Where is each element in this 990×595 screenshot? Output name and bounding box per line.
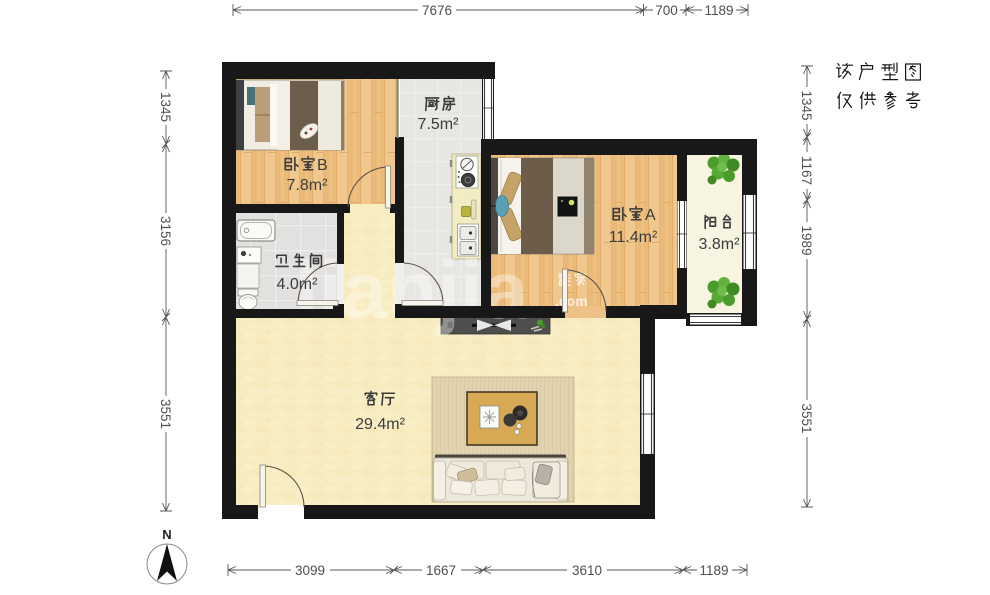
svg-text:3099: 3099 xyxy=(295,563,325,578)
svg-text:1989: 1989 xyxy=(799,225,814,255)
svg-text:lianjia: lianjia xyxy=(296,245,530,336)
svg-text:700: 700 xyxy=(655,3,678,18)
svg-text:N: N xyxy=(162,527,171,542)
svg-text:1345: 1345 xyxy=(799,90,814,120)
svg-text:11.4m²: 11.4m² xyxy=(609,229,658,246)
svg-text:3551: 3551 xyxy=(799,403,814,433)
svg-text:1667: 1667 xyxy=(426,563,456,578)
svg-text:1189: 1189 xyxy=(704,3,733,18)
svg-text:7.8m²: 7.8m² xyxy=(287,177,329,194)
svg-text:1167: 1167 xyxy=(799,156,814,185)
svg-text:4.0m²: 4.0m² xyxy=(277,276,319,293)
svg-text:3551: 3551 xyxy=(158,399,173,429)
svg-text:7.5m²: 7.5m² xyxy=(418,116,460,133)
svg-text:A: A xyxy=(645,207,656,224)
svg-text:29.4m²: 29.4m² xyxy=(355,416,405,433)
svg-text:1345: 1345 xyxy=(158,92,173,122)
svg-text:3.8m²: 3.8m² xyxy=(699,236,741,253)
svg-text:1189: 1189 xyxy=(699,563,728,578)
svg-text:3610: 3610 xyxy=(572,563,602,578)
svg-text:3156: 3156 xyxy=(158,216,173,246)
svg-text:7676: 7676 xyxy=(422,3,452,18)
svg-text:B: B xyxy=(317,157,328,174)
